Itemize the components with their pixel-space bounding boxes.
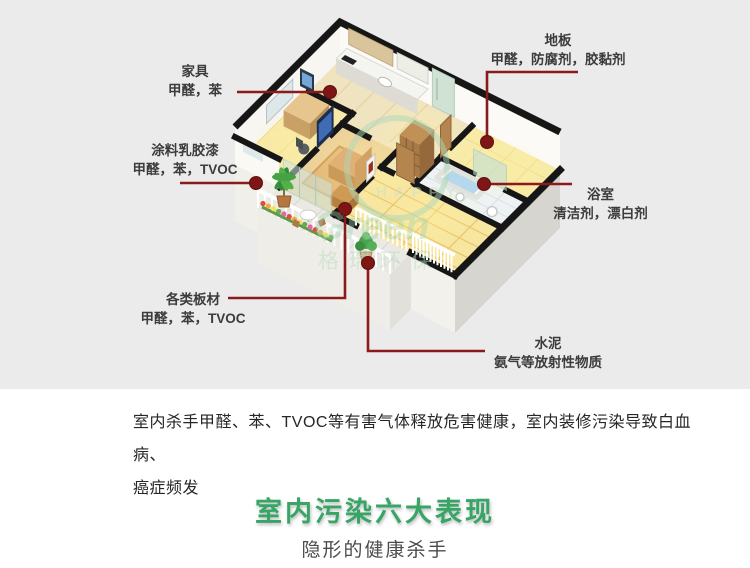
callout-cement-substances: 氨气等放射性物质 xyxy=(478,353,618,372)
callout-cement-title: 水泥 xyxy=(478,334,618,353)
callout-bathroom: 浴室 清洁剂，漂白剂 xyxy=(538,185,663,223)
bathroom-sink xyxy=(487,207,497,217)
watermark-happy-text: HAPPY xyxy=(376,184,463,201)
watermark-brand-text: Green xyxy=(314,204,430,248)
callout-dot-floorboard xyxy=(481,136,494,149)
callout-dot-bathroom xyxy=(478,178,491,191)
callout-paint: 涂料乳胶漆 甲醛，苯，TVOC xyxy=(120,141,250,179)
callout-floorboard-substances: 甲醛，防腐剂，胶黏剂 xyxy=(478,50,638,69)
callout-cement: 水泥 氨气等放射性物质 xyxy=(478,334,618,372)
callout-floorboard-title: 地板 xyxy=(478,31,638,50)
callout-dot-furniture xyxy=(324,86,337,99)
callout-furniture-substances: 甲醛，苯 xyxy=(136,81,254,100)
callout-boards-substances: 甲醛，苯，TVOC xyxy=(128,309,258,328)
callout-boards-title: 各类板材 xyxy=(128,290,258,309)
callout-paint-substances: 甲醛，苯，TVOC xyxy=(120,160,250,179)
callout-paint-title: 涂料乳胶漆 xyxy=(120,141,250,160)
callout-dot-cement xyxy=(362,257,375,270)
callout-dot-boards xyxy=(339,203,352,216)
callout-boards: 各类板材 甲醛，苯，TVOC xyxy=(128,290,258,328)
watermark-brand-cn-text: 格瑞环保 xyxy=(318,250,442,273)
indoor-pollution-infographic: HAPPY Green 格瑞环保 家具 甲醛，苯 涂料乳胶漆 甲醛，苯，TVOC xyxy=(0,0,750,568)
callout-dot-paint xyxy=(250,177,263,190)
callout-bathroom-title: 浴室 xyxy=(538,185,663,204)
section-heading: 室内污染六大表现 xyxy=(0,490,750,529)
callout-furniture-title: 家具 xyxy=(136,62,254,81)
callout-furniture: 家具 甲醛，苯 xyxy=(136,62,254,100)
callout-floorboard: 地板 甲醛，防腐剂，胶黏剂 xyxy=(478,31,638,69)
section-subheading: 隐形的健康杀手 xyxy=(0,535,750,562)
description-line-1: 室内杀手甲醛、苯、TVOC等有害气体释放危害健康，室内装修污染导致白血病、 xyxy=(133,406,695,472)
callout-bathroom-substances: 清洁剂，漂白剂 xyxy=(538,204,663,223)
